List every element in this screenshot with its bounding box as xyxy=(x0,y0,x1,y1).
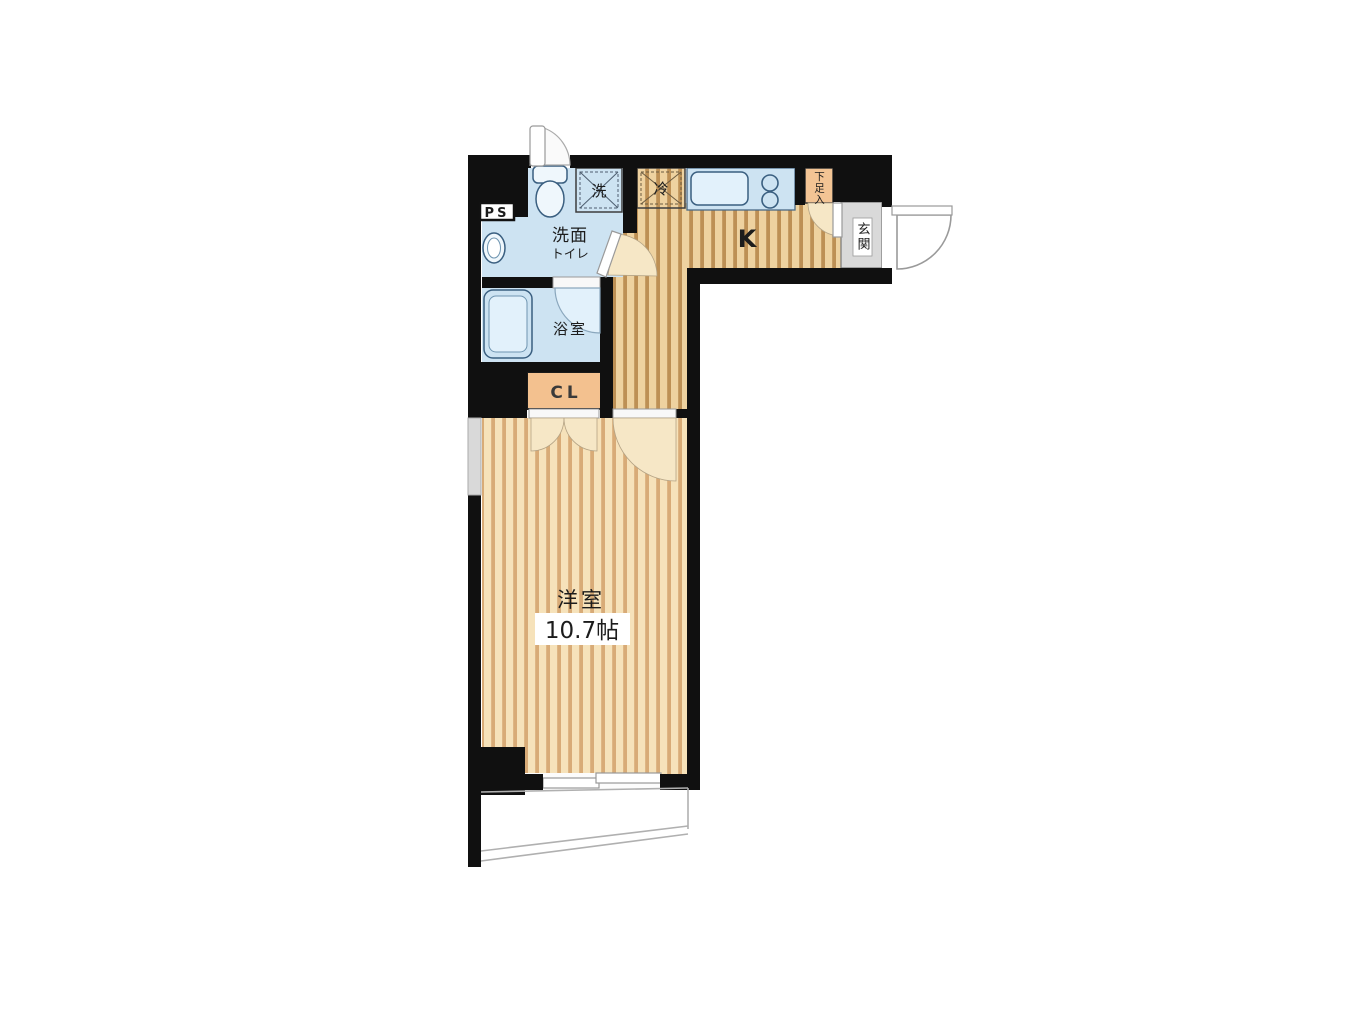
closet-label: CL xyxy=(550,383,581,403)
bathroom-label: 浴室 xyxy=(553,320,587,338)
main-room-label: 洋室 xyxy=(557,588,605,612)
kitchen-sink xyxy=(691,172,748,205)
kitchen-hall-floor xyxy=(613,203,841,409)
bathtub-fixture xyxy=(484,290,532,358)
top-window-door-arc xyxy=(530,126,570,166)
entrance-label: 玄関 xyxy=(855,222,871,252)
room-door-threshold xyxy=(613,409,676,418)
washer-label: 洗 xyxy=(591,182,606,200)
washroom-sublabel: トイレ xyxy=(551,246,589,261)
floor-plan-drawing: PS 洗面 トイレ 洗 冷 K 下足入 玄関 浴室 CL 洋室 10.7帖 xyxy=(0,0,1366,1020)
basin-fixture xyxy=(483,233,505,263)
closet-door-threshold xyxy=(529,409,599,418)
washroom-label: 洗面 xyxy=(552,226,588,246)
floor-plan: PS 洗面 トイレ 洗 冷 K 下足入 玄関 浴室 CL 洋室 10.7帖 xyxy=(0,0,1366,1020)
shoe-cabinet-label: 下足入 xyxy=(813,171,825,206)
bathroom-door-threshold xyxy=(553,277,600,288)
kitchen-label: K xyxy=(738,225,758,253)
entrance-door-arc xyxy=(882,206,952,269)
window-left xyxy=(468,418,481,495)
main-room-size-label: 10.7帖 xyxy=(545,618,619,644)
fridge-label: 冷 xyxy=(653,180,668,198)
toilet-fixture xyxy=(533,166,567,217)
ps-label: PS xyxy=(485,206,510,221)
window-bottom xyxy=(525,773,661,790)
balcony xyxy=(481,788,688,861)
